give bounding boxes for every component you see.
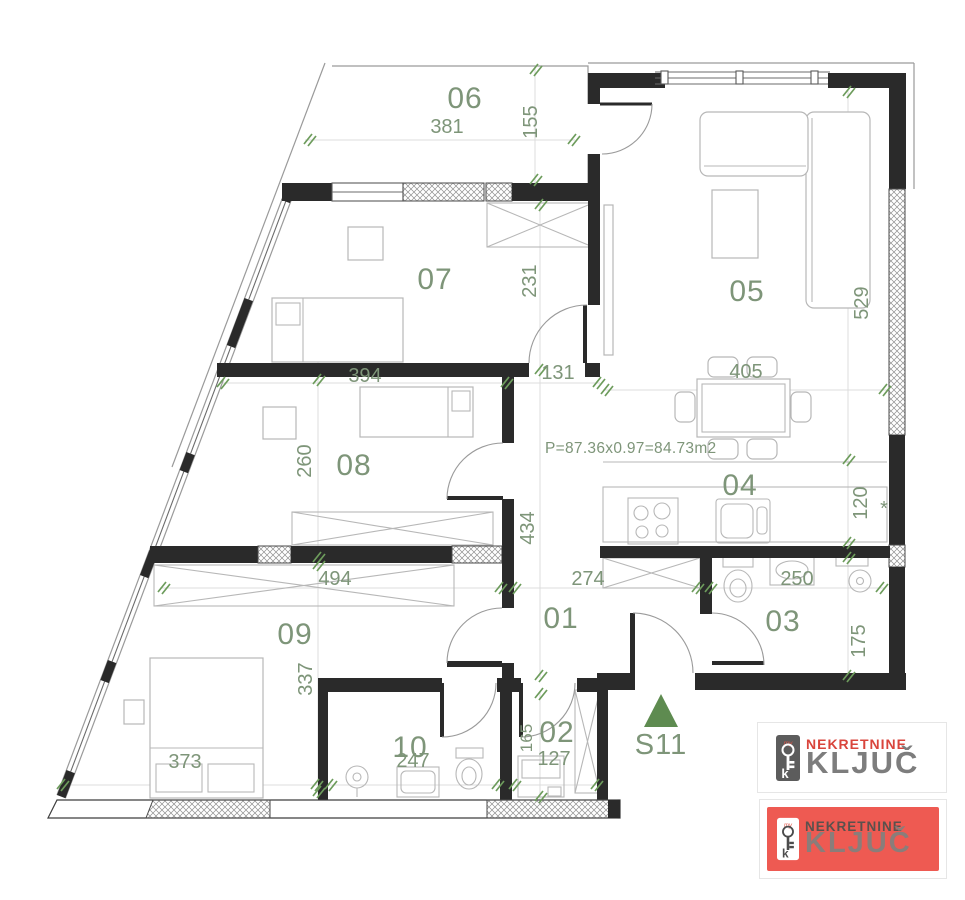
room-label-05: 05 — [729, 275, 764, 308]
room-label-06: 06 — [447, 82, 482, 115]
dim-155: 155 — [520, 105, 542, 138]
door-room07 — [529, 305, 587, 363]
dim-494: 494 — [318, 568, 351, 590]
tv-bench — [604, 205, 613, 355]
dim-405: 405 — [729, 361, 762, 383]
room-label-03: 03 — [765, 605, 800, 638]
stove — [628, 498, 678, 544]
boiler-room03 — [849, 570, 871, 592]
dim-175: 175 — [848, 624, 870, 657]
dim-247: 247 — [396, 750, 429, 772]
logo-brand-line2: KLJUČ — [805, 829, 912, 858]
area-formula: P=87.36x0.97=84.73m2 — [545, 440, 716, 457]
dim-529: 529 — [851, 286, 873, 319]
sink-room10 — [346, 766, 368, 797]
dim-373: 373 — [168, 751, 201, 773]
dim-394: 394 — [348, 365, 381, 387]
dim-131: 131 — [541, 362, 574, 384]
room-label-04: 04 — [722, 469, 757, 502]
dim-250: 250 — [780, 568, 813, 590]
hall-cabinet — [603, 558, 700, 588]
toilet-room03 — [723, 556, 753, 602]
sofa-vertical — [806, 112, 870, 308]
dim-274: 274 — [571, 568, 604, 590]
north-triangle-marker — [644, 694, 678, 727]
wardrobe-room02 — [575, 690, 600, 793]
dim-434: 434 — [517, 511, 539, 544]
agency-logo-light: my k NEKRETNINE KLJUČ — [757, 722, 947, 793]
desk-room08 — [263, 407, 296, 439]
dim-231: 231 — [519, 264, 541, 297]
svg-text:k: k — [782, 846, 789, 860]
nightstand-room09 — [124, 700, 144, 724]
dim-337: 337 — [295, 662, 317, 695]
logo-brand-line2: KLJUČ — [806, 747, 919, 778]
door-room09 — [447, 608, 502, 667]
door-room08 — [447, 443, 503, 500]
dim-381: 381 — [430, 116, 463, 138]
door-room03 — [712, 613, 764, 665]
entrance-door — [630, 613, 693, 673]
bottom-wall — [48, 800, 620, 818]
site-boundary-line — [172, 63, 325, 467]
dim-127: 127 — [537, 748, 570, 770]
window-room05 — [655, 71, 830, 84]
door-room10 — [440, 683, 496, 737]
key-icon: my k — [776, 735, 800, 781]
coffee-table — [712, 190, 758, 258]
wardrobe-room08 — [292, 512, 493, 545]
agency-logo-red: my k NEKRETNINE KLJUČ — [759, 799, 947, 879]
toilet-room10 — [456, 748, 483, 789]
bed-room07 — [272, 298, 403, 362]
hatched-wall-right — [889, 189, 905, 435]
room-label-09: 09 — [277, 618, 312, 651]
wardrobe-room09 — [154, 565, 454, 606]
room-label-07: 07 — [417, 263, 452, 296]
room-label-02: 02 — [539, 716, 574, 749]
desk-room07 — [348, 227, 383, 260]
svg-text:k: k — [781, 766, 789, 781]
dim-asterisk: * — [880, 498, 888, 520]
room-label-08: 08 — [336, 449, 371, 482]
room-label-01: 01 — [543, 602, 578, 635]
balcony-door — [600, 104, 652, 154]
key-icon: my k — [777, 817, 799, 861]
dim-165: 165 — [517, 724, 536, 752]
bed-room08 — [360, 387, 473, 437]
floor-plan-page: 06 07 05 08 04 01 03 09 10 02 381 155 39… — [0, 0, 965, 900]
section-label: S11 — [635, 729, 687, 761]
dim-260: 260 — [294, 444, 316, 477]
dim-120: 120 — [850, 486, 872, 519]
bed-room09 — [150, 658, 263, 798]
